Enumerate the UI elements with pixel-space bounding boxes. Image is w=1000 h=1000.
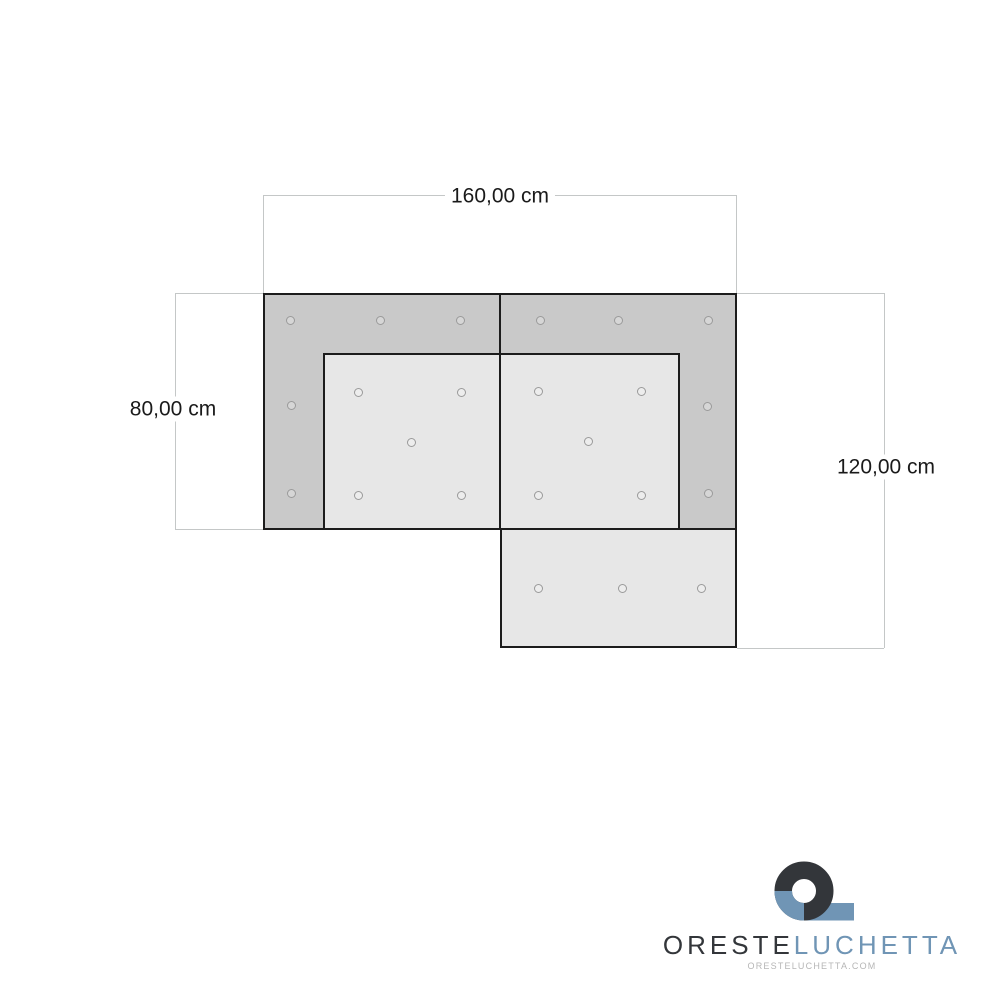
tufting-button bbox=[354, 491, 363, 500]
tufting-button bbox=[584, 437, 593, 446]
tufting-button bbox=[354, 388, 363, 397]
tufting-button bbox=[457, 388, 466, 397]
tufting-button bbox=[704, 316, 713, 325]
extension-line-width-right bbox=[736, 195, 737, 293]
dimension-label-depth-left: 80,00 cm bbox=[124, 397, 222, 422]
dimension-label-depth-right: 120,00 cm bbox=[831, 455, 941, 480]
tufting-button bbox=[456, 316, 465, 325]
tufting-button bbox=[534, 387, 543, 396]
brand-name-secondary: LUCHETTA bbox=[794, 930, 961, 960]
tufting-button bbox=[618, 584, 627, 593]
tufting-button bbox=[287, 489, 296, 498]
brand-wordmark: ORESTELUCHETTA bbox=[663, 932, 961, 958]
seat-cushions bbox=[323, 353, 680, 530]
tufting-button bbox=[534, 584, 543, 593]
tufting-button bbox=[704, 489, 713, 498]
q-mark-icon bbox=[750, 848, 860, 936]
extension-line-depth-left-bottom bbox=[175, 529, 263, 530]
drawing-canvas: 160,00 cm 80,00 cm 120,00 cm ORESTELUCHE… bbox=[0, 0, 1000, 1000]
tufting-button bbox=[703, 402, 712, 411]
tufting-button bbox=[457, 491, 466, 500]
extension-line-depth-right-bottom bbox=[737, 648, 884, 649]
extension-line-width-left bbox=[263, 195, 264, 293]
tufting-button bbox=[286, 316, 295, 325]
tufting-button bbox=[534, 491, 543, 500]
seat-divider-line bbox=[499, 293, 501, 530]
tufting-button bbox=[287, 401, 296, 410]
tufting-button bbox=[637, 491, 646, 500]
extension-line-depth-right-top bbox=[737, 293, 884, 294]
tufting-button bbox=[637, 387, 646, 396]
dimension-label-width: 160,00 cm bbox=[445, 184, 555, 209]
tufting-button bbox=[376, 316, 385, 325]
brand-name-primary: ORESTE bbox=[663, 930, 794, 960]
tufting-button bbox=[697, 584, 706, 593]
extension-line-depth-left-top bbox=[175, 293, 263, 294]
tufting-button bbox=[407, 438, 416, 447]
tufting-button bbox=[614, 316, 623, 325]
brand-website: ORESTELUCHETTA.COM bbox=[748, 962, 877, 971]
tufting-button bbox=[536, 316, 545, 325]
